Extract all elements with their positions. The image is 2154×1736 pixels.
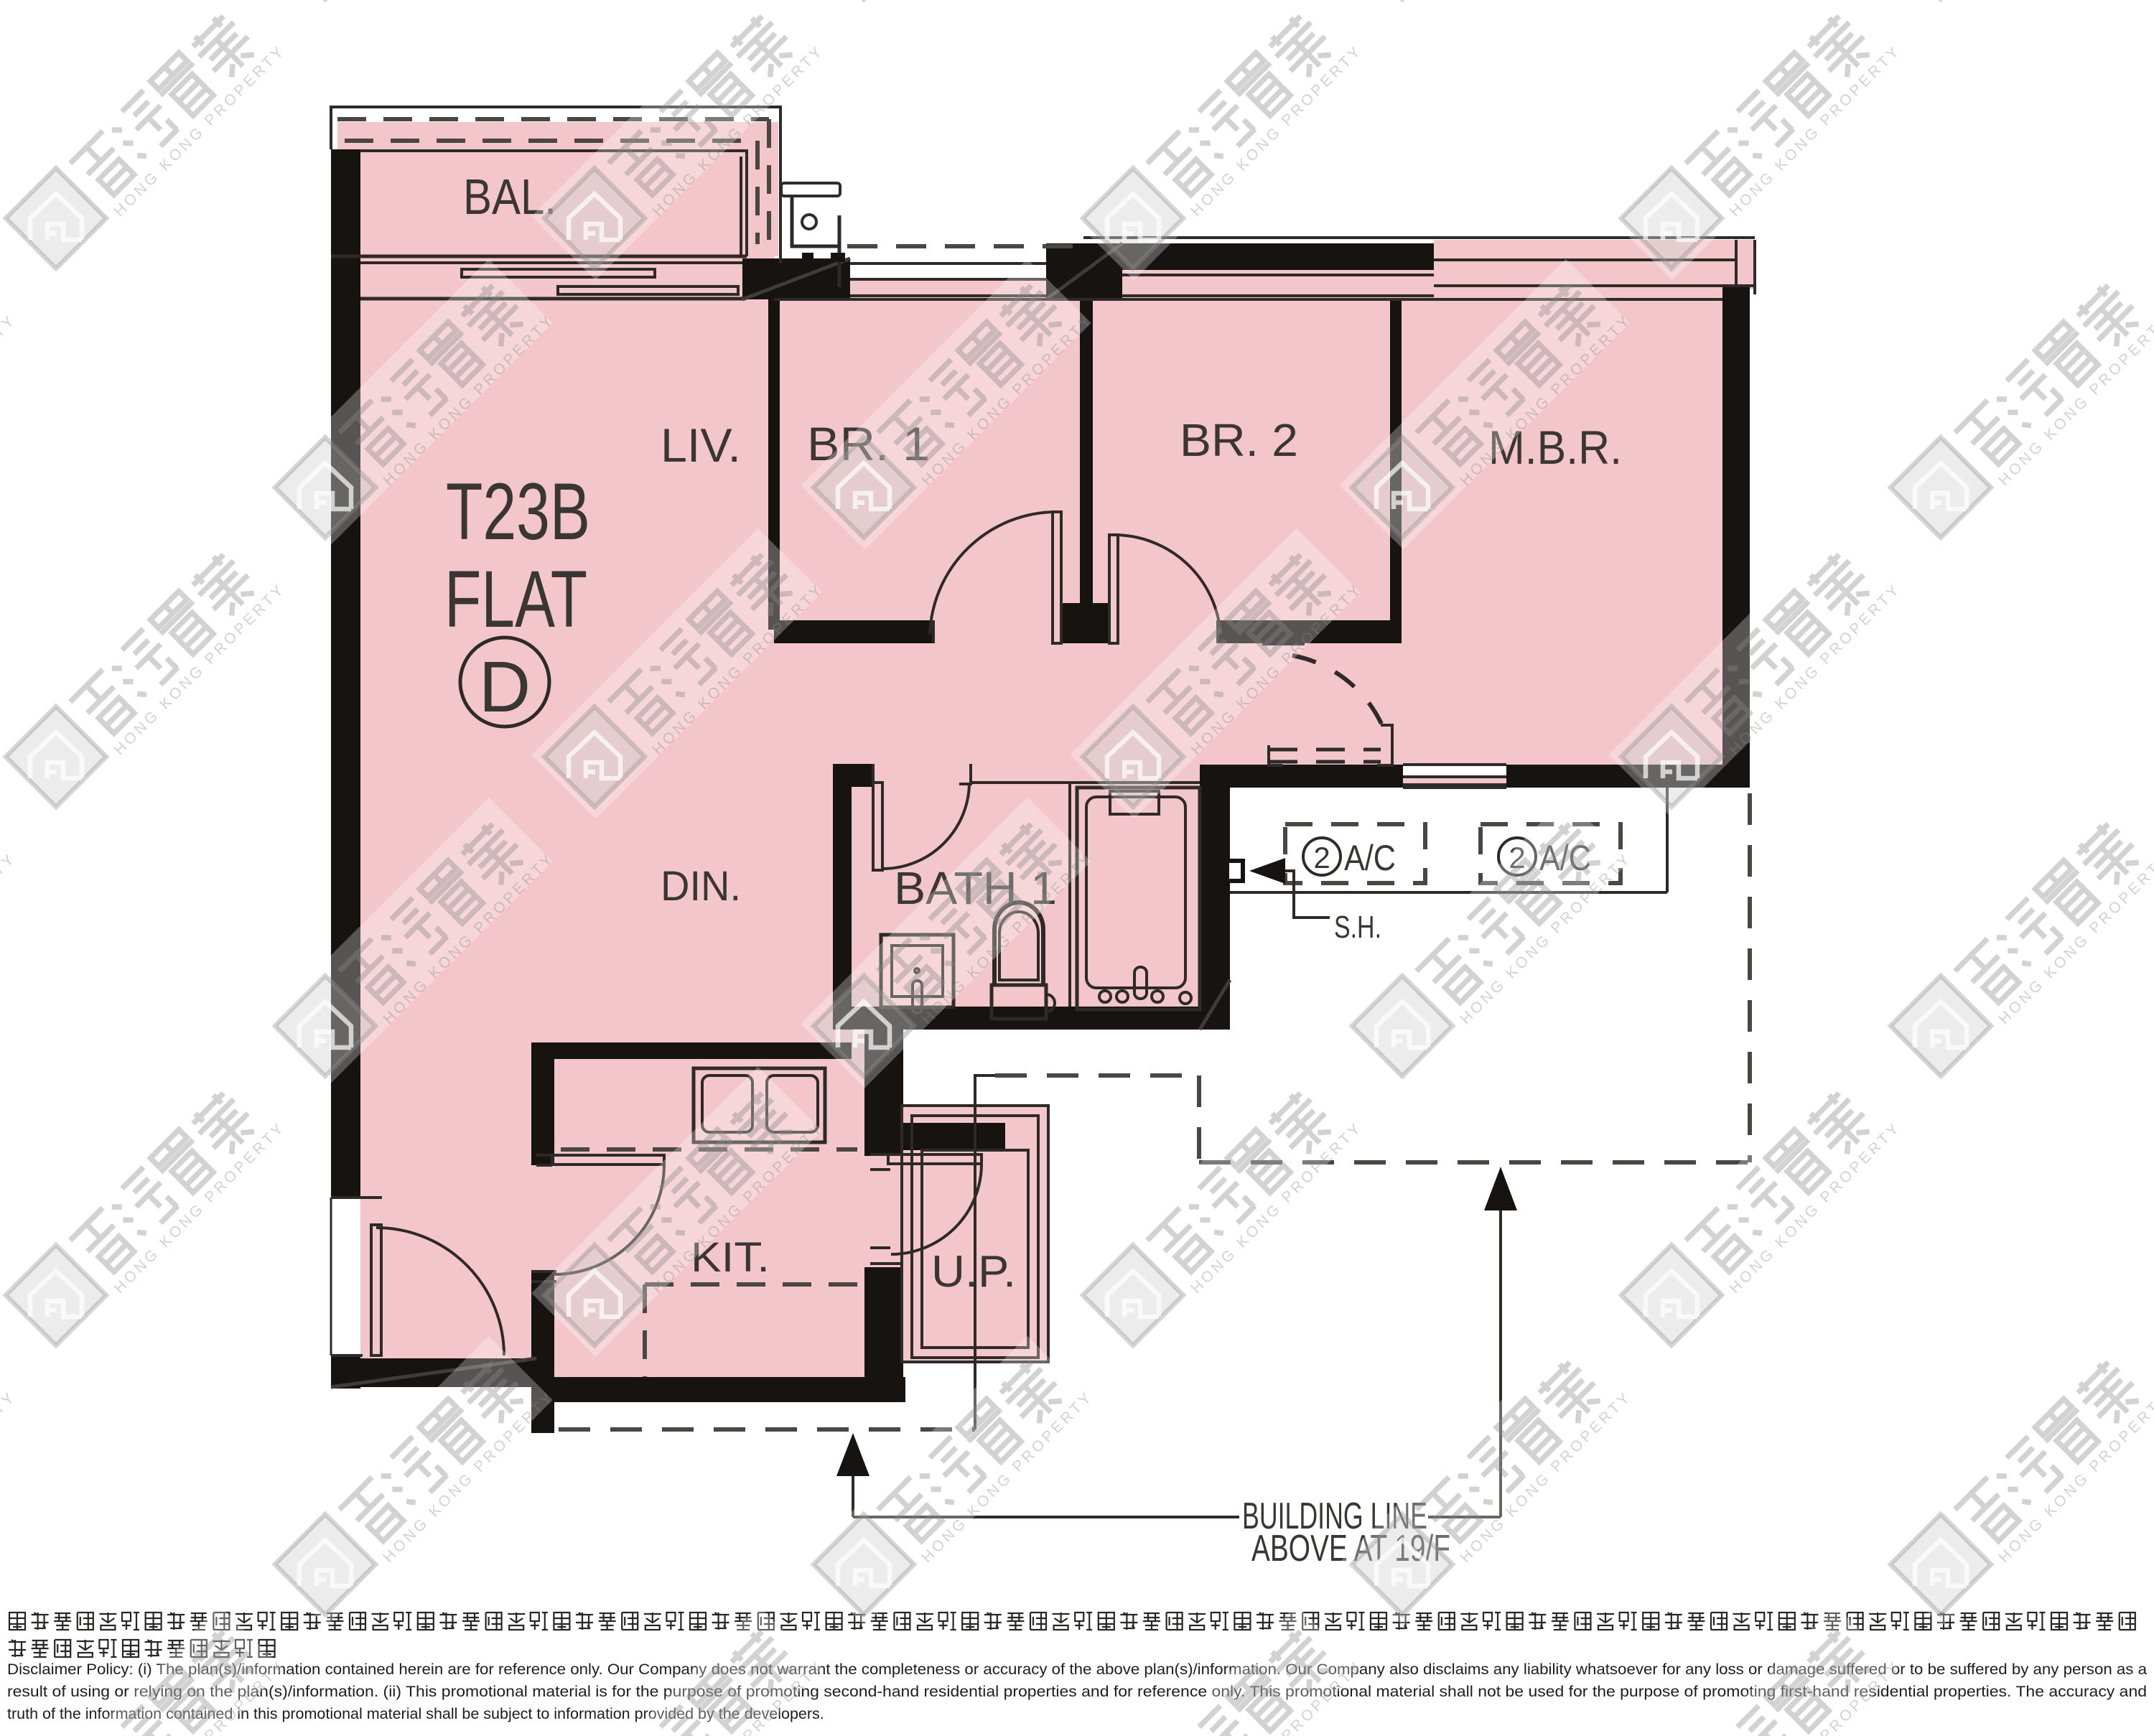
svg-text:U.P.: U.P. bbox=[931, 1247, 1016, 1297]
svg-text:D: D bbox=[479, 647, 531, 727]
svg-text:T23B: T23B bbox=[446, 467, 590, 556]
svg-text:S.H.: S.H. bbox=[1334, 910, 1381, 945]
svg-text:2: 2 bbox=[1313, 841, 1330, 874]
svg-text:BR. 2: BR. 2 bbox=[1180, 414, 1298, 466]
svg-text:FLAT: FLAT bbox=[444, 554, 587, 644]
svg-text:LIV.: LIV. bbox=[661, 419, 741, 472]
svg-text:DIN.: DIN. bbox=[661, 863, 741, 910]
svg-text:A/C: A/C bbox=[1344, 838, 1396, 878]
